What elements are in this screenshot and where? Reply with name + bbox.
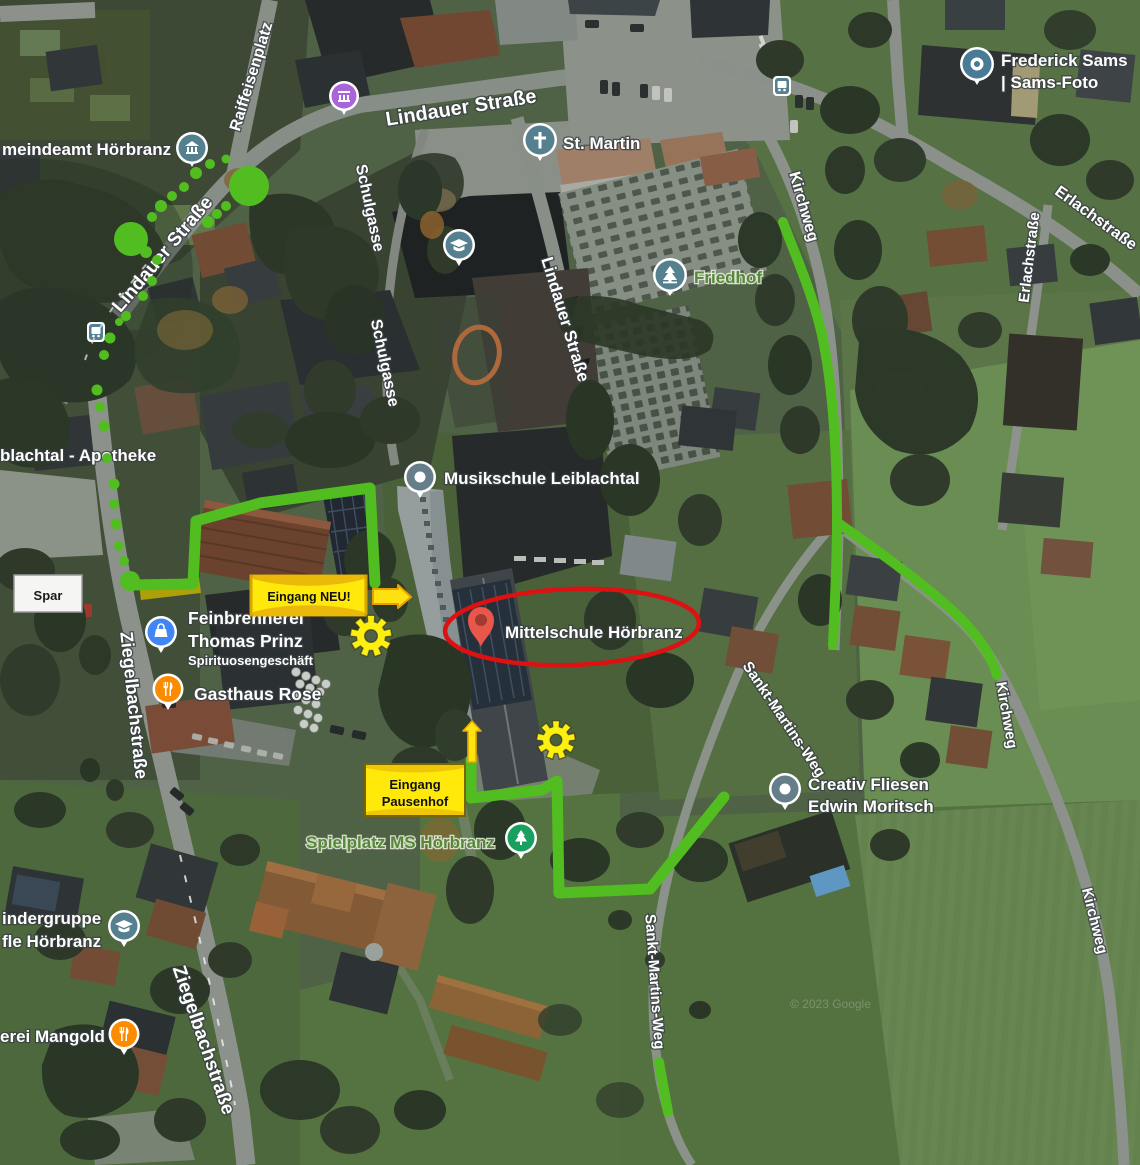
svg-text:Spirituosengeschäft: Spirituosengeschäft (188, 653, 314, 668)
svg-text:Creativ Fliesen: Creativ Fliesen (808, 775, 929, 794)
svg-text:Eingang: Eingang (389, 777, 440, 792)
svg-text:indergruppe: indergruppe (2, 909, 101, 928)
svg-text:erei Mangold: erei Mangold (0, 1027, 105, 1046)
svg-text:| Sams-Foto: | Sams-Foto (1001, 73, 1098, 92)
svg-text:Gasthaus Rose: Gasthaus Rose (194, 684, 322, 704)
svg-text:Edwin Moritsch: Edwin Moritsch (808, 797, 934, 816)
svg-text:St. Martin: St. Martin (563, 134, 640, 153)
svg-text:Friedhof: Friedhof (694, 268, 762, 287)
svg-text:Thomas Prinz: Thomas Prinz (188, 631, 303, 651)
svg-text:Eingang NEU!: Eingang NEU! (267, 590, 350, 604)
svg-text:Pausenhof: Pausenhof (382, 794, 449, 809)
svg-text:Mittelschule Hörbranz: Mittelschule Hörbranz (505, 623, 683, 642)
svg-text:blachtal - Apotheke: blachtal - Apotheke (0, 446, 156, 465)
svg-text:Frederick Sams: Frederick Sams (1001, 51, 1128, 70)
svg-text:Musikschule Leiblachtal: Musikschule Leiblachtal (444, 469, 640, 488)
svg-text:Spielplatz MS Hörbranz: Spielplatz MS Hörbranz (306, 833, 495, 852)
svg-text:meindeamt Hörbranz: meindeamt Hörbranz (2, 140, 171, 159)
svg-text:Spar: Spar (34, 588, 63, 603)
svg-text:© 2023 Google: © 2023 Google (790, 997, 871, 1011)
svg-text:fle Hörbranz: fle Hörbranz (2, 932, 101, 951)
